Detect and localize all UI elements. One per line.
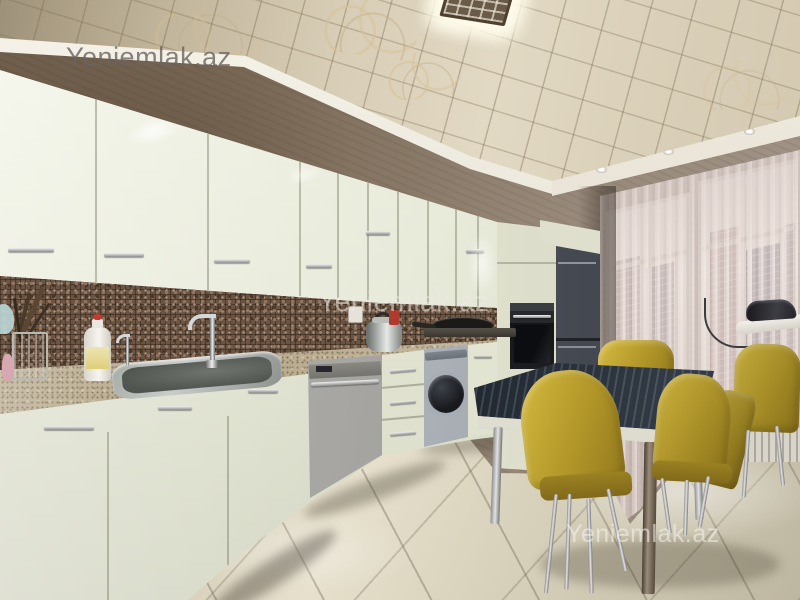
drawer-handle (390, 431, 416, 436)
faucet-base (206, 360, 218, 368)
pink-item (2, 354, 13, 382)
watermark-top-left: Yeniemlak.az (66, 42, 232, 73)
fridge-divider (556, 338, 600, 341)
cabinet-handle (248, 389, 278, 393)
washer-door (424, 371, 468, 417)
cabinet-door-seam (107, 432, 109, 600)
cabinet-door-seam (207, 134, 209, 290)
fridge-handle (558, 262, 596, 264)
cabinet-door-seam (227, 416, 229, 566)
watermark-center: Yeniemlak.az (318, 286, 490, 318)
faucet-spout (188, 314, 216, 330)
kettle-body (366, 321, 402, 352)
blue-bowl (0, 304, 14, 334)
cabinet-handle (214, 259, 250, 263)
cabinet-door-seam (95, 99, 97, 282)
lattice-ceiling-tile (439, 0, 516, 26)
watermark-bottom-right: Yeniemlak.az (566, 520, 720, 549)
cabinet-handle (8, 248, 54, 252)
cabinet-handle (158, 406, 192, 410)
cabinet-handle (306, 264, 332, 268)
dish-soap-bottle (84, 327, 111, 381)
oven-glass (514, 325, 550, 363)
kitchen-photo: Yeniemlak.az Yeniemlak.az Yeniemlak.az (0, 0, 800, 600)
built-in-oven (510, 303, 554, 369)
drawer-handle (390, 368, 416, 373)
oven-handle (513, 315, 551, 318)
soap-cap-tip (94, 314, 101, 320)
cooktop (424, 328, 516, 337)
fridge-handle (558, 346, 596, 348)
drawer-seam (382, 383, 424, 389)
cabinet-handle (474, 355, 492, 358)
wire-cup (12, 332, 48, 380)
dishwasher-display (316, 366, 332, 372)
utensil-holder (0, 292, 52, 394)
cabinet-door-seam (337, 173, 339, 298)
cabinet-handle (104, 253, 144, 257)
clothes-iron (745, 298, 796, 321)
washer-control-panel (425, 349, 468, 361)
drawer-handle (390, 400, 416, 405)
dishwasher-handle (311, 379, 379, 387)
cabinet-handle (44, 426, 94, 430)
small-faucet-spout (116, 334, 130, 343)
cabinet-door-seam (367, 183, 369, 300)
drawer-seam (382, 415, 424, 421)
cabinet-seam (497, 262, 556, 264)
cabinet-handle (366, 231, 390, 235)
soap-cap (92, 319, 103, 328)
soap-label (86, 347, 109, 369)
